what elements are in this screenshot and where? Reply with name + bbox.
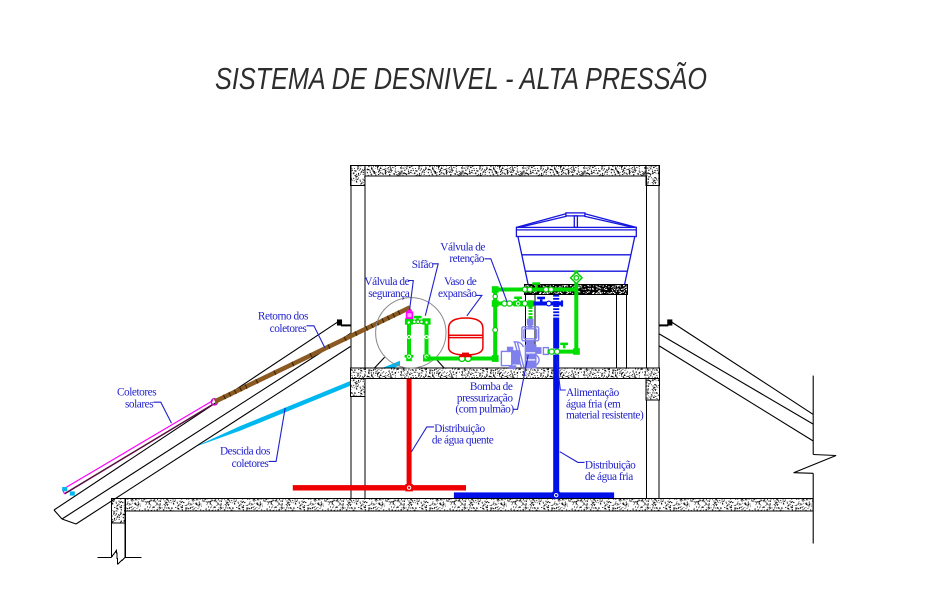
svg-text:coletores: coletores [270, 323, 307, 335]
svg-text:segurança: segurança [368, 288, 410, 300]
svg-text:Vaso de: Vaso de [444, 276, 477, 288]
svg-text:de água fria: de água fria [585, 471, 633, 483]
svg-text:Válvula de: Válvula de [364, 276, 409, 288]
svg-text:material resistente): material resistente) [566, 410, 644, 422]
svg-text:Alimentação: Alimentação [566, 387, 620, 399]
svg-text:Distribuição: Distribuição [585, 460, 636, 472]
svg-text:expansão: expansão [438, 288, 477, 300]
svg-text:Coletores: Coletores [117, 387, 156, 399]
svg-text:solares: solares [125, 399, 153, 411]
svg-text:Retorno dos: Retorno dos [258, 311, 308, 323]
svg-text:pressurização: pressurização [457, 392, 513, 404]
svg-text:Bomba de: Bomba de [470, 381, 513, 393]
svg-text:retenção: retenção [449, 253, 484, 265]
svg-text:Válvula de: Válvula de [440, 241, 485, 253]
svg-text:de água quente: de água quente [432, 435, 494, 447]
svg-text:SISTEMA DE DESNIVEL - ALTA PRE: SISTEMA DE DESNIVEL - ALTA PRESSÃO [215, 61, 707, 96]
svg-text:Distribuição: Distribuição [434, 423, 485, 435]
svg-text:água fria (em: água fria (em [566, 398, 621, 410]
svg-text:coletores: coletores [232, 458, 269, 470]
svg-text:Descida dos: Descida dos [220, 446, 270, 458]
svg-text:(com pulmão): (com pulmão) [455, 404, 514, 416]
svg-text:Sifão: Sifão [412, 259, 434, 271]
